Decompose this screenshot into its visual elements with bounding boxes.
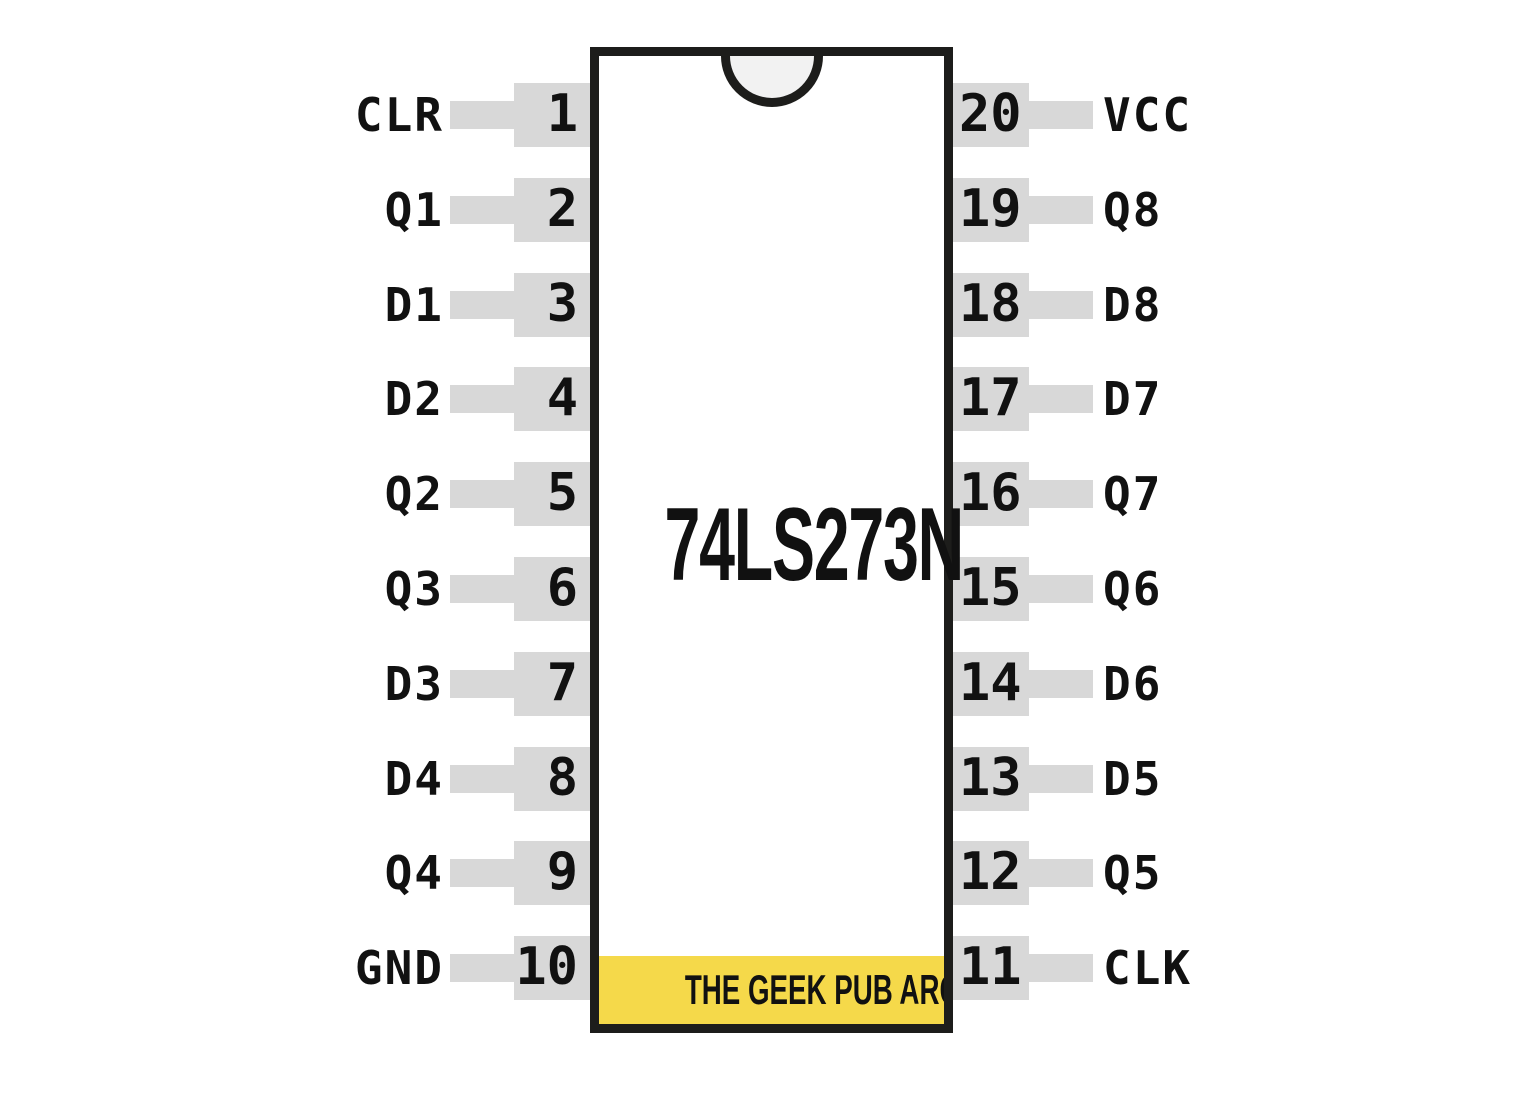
pin-7-label: D3 — [385, 652, 444, 716]
pin-13-lead — [1029, 765, 1093, 793]
pin-9-label: Q4 — [385, 841, 444, 905]
pin-7-pad: 7 — [514, 652, 592, 716]
pin-11-lead — [1029, 954, 1093, 982]
pin-13-label: D5 — [1103, 747, 1162, 811]
pin-9-lead — [450, 859, 514, 887]
pin-18-number: 18 — [951, 273, 1029, 337]
pin-row-16: 16 Q7 — [951, 462, 1536, 526]
pin-12-number: 12 — [951, 841, 1029, 905]
pin-5-pad: 5 — [514, 462, 592, 526]
brand-banner: THE GEEK PUB ARCADE — [599, 956, 944, 1024]
pin-row-2: Q1 2 — [0, 178, 592, 242]
pin-row-3: D1 3 — [0, 273, 592, 337]
pin-5-lead — [450, 480, 514, 508]
pin-3-pad: 3 — [514, 273, 592, 337]
pinout-diagram: CLR 1 Q1 2 D1 3 D2 4 Q2 5 Q3 6 D3 7 D4 8… — [0, 0, 1536, 1098]
pin-14-pad: 14 — [951, 652, 1029, 716]
pin-10-number: 10 — [514, 936, 592, 1000]
pin-2-pad: 2 — [514, 178, 592, 242]
pin-14-number: 14 — [951, 652, 1029, 716]
pin-row-4: D2 4 — [0, 367, 592, 431]
pin-4-label: D2 — [385, 367, 444, 431]
pin-12-label: Q5 — [1103, 841, 1162, 905]
pin-20-number: 20 — [951, 83, 1029, 147]
chip-part-number: 74LS273N — [665, 490, 879, 600]
pin-row-19: 19 Q8 — [951, 178, 1536, 242]
pin-1-pad: 1 — [514, 83, 592, 147]
pin-17-pad: 17 — [951, 367, 1029, 431]
pin-20-label: VCC — [1103, 83, 1192, 147]
pin-row-15: 15 Q6 — [951, 557, 1536, 621]
pin-19-lead — [1029, 196, 1093, 224]
pin-row-11: 11 CLK — [951, 936, 1536, 1000]
pin-4-number: 4 — [514, 367, 592, 431]
pin-1-label: CLR — [355, 83, 444, 147]
pin-6-number: 6 — [514, 557, 592, 621]
pin-8-pad: 8 — [514, 747, 592, 811]
pin-13-pad: 13 — [951, 747, 1029, 811]
pin-row-13: 13 D5 — [951, 747, 1536, 811]
pin-5-label: Q2 — [385, 462, 444, 526]
pin-row-7: D3 7 — [0, 652, 592, 716]
pin-9-number: 9 — [514, 841, 592, 905]
pin-7-number: 7 — [514, 652, 592, 716]
pin-17-lead — [1029, 385, 1093, 413]
pin-row-12: 12 Q5 — [951, 841, 1536, 905]
pin-10-lead — [450, 954, 514, 982]
pin-11-number: 11 — [951, 936, 1029, 1000]
pin-3-lead — [450, 291, 514, 319]
pin-1-number: 1 — [514, 83, 592, 147]
pin-row-9: Q4 9 — [0, 841, 592, 905]
pin-row-17: 17 D7 — [951, 367, 1536, 431]
ic-chip-body: 74LS273N THE GEEK PUB ARCADE — [590, 47, 953, 1033]
pin-1-lead — [450, 101, 514, 129]
pin-7-lead — [450, 670, 514, 698]
pin-row-14: 14 D6 — [951, 652, 1536, 716]
pin-row-6: Q3 6 — [0, 557, 592, 621]
pin-4-lead — [450, 385, 514, 413]
pin-5-number: 5 — [514, 462, 592, 526]
pin-row-1: CLR 1 — [0, 83, 592, 147]
pin-16-label: Q7 — [1103, 462, 1162, 526]
pin-4-pad: 4 — [514, 367, 592, 431]
pin-12-lead — [1029, 859, 1093, 887]
pin-8-number: 8 — [514, 747, 592, 811]
pin-17-label: D7 — [1103, 367, 1162, 431]
pin-row-10: GND 10 — [0, 936, 592, 1000]
pin-8-lead — [450, 765, 514, 793]
pin-18-pad: 18 — [951, 273, 1029, 337]
pin-20-lead — [1029, 101, 1093, 129]
pin-row-18: 18 D8 — [951, 273, 1536, 337]
pin-15-lead — [1029, 575, 1093, 603]
pin-2-lead — [450, 196, 514, 224]
orientation-notch-icon — [707, 56, 837, 110]
pin-row-5: Q2 5 — [0, 462, 592, 526]
pin-9-pad: 9 — [514, 841, 592, 905]
pin-17-number: 17 — [951, 367, 1029, 431]
pin-6-lead — [450, 575, 514, 603]
pin-16-lead — [1029, 480, 1093, 508]
pin-2-label: Q1 — [385, 178, 444, 242]
pin-18-label: D8 — [1103, 273, 1162, 337]
pin-3-label: D1 — [385, 273, 444, 337]
pin-19-number: 19 — [951, 178, 1029, 242]
pin-3-number: 3 — [514, 273, 592, 337]
brand-banner-text: THE GEEK PUB ARCADE — [685, 956, 944, 1024]
pin-10-label: GND — [355, 936, 444, 1000]
pin-14-label: D6 — [1103, 652, 1162, 716]
pin-11-pad: 11 — [951, 936, 1029, 1000]
pin-19-label: Q8 — [1103, 178, 1162, 242]
pin-8-label: D4 — [385, 747, 444, 811]
pin-14-lead — [1029, 670, 1093, 698]
pin-20-pad: 20 — [951, 83, 1029, 147]
pin-12-pad: 12 — [951, 841, 1029, 905]
pin-row-8: D4 8 — [0, 747, 592, 811]
pin-13-number: 13 — [951, 747, 1029, 811]
pin-10-pad: 10 — [514, 936, 592, 1000]
pin-2-number: 2 — [514, 178, 592, 242]
pin-19-pad: 19 — [951, 178, 1029, 242]
pin-row-20: 20 VCC — [951, 83, 1536, 147]
pin-11-label: CLK — [1103, 936, 1192, 1000]
pin-15-label: Q6 — [1103, 557, 1162, 621]
pin-18-lead — [1029, 291, 1093, 319]
pin-6-label: Q3 — [385, 557, 444, 621]
pin-6-pad: 6 — [514, 557, 592, 621]
